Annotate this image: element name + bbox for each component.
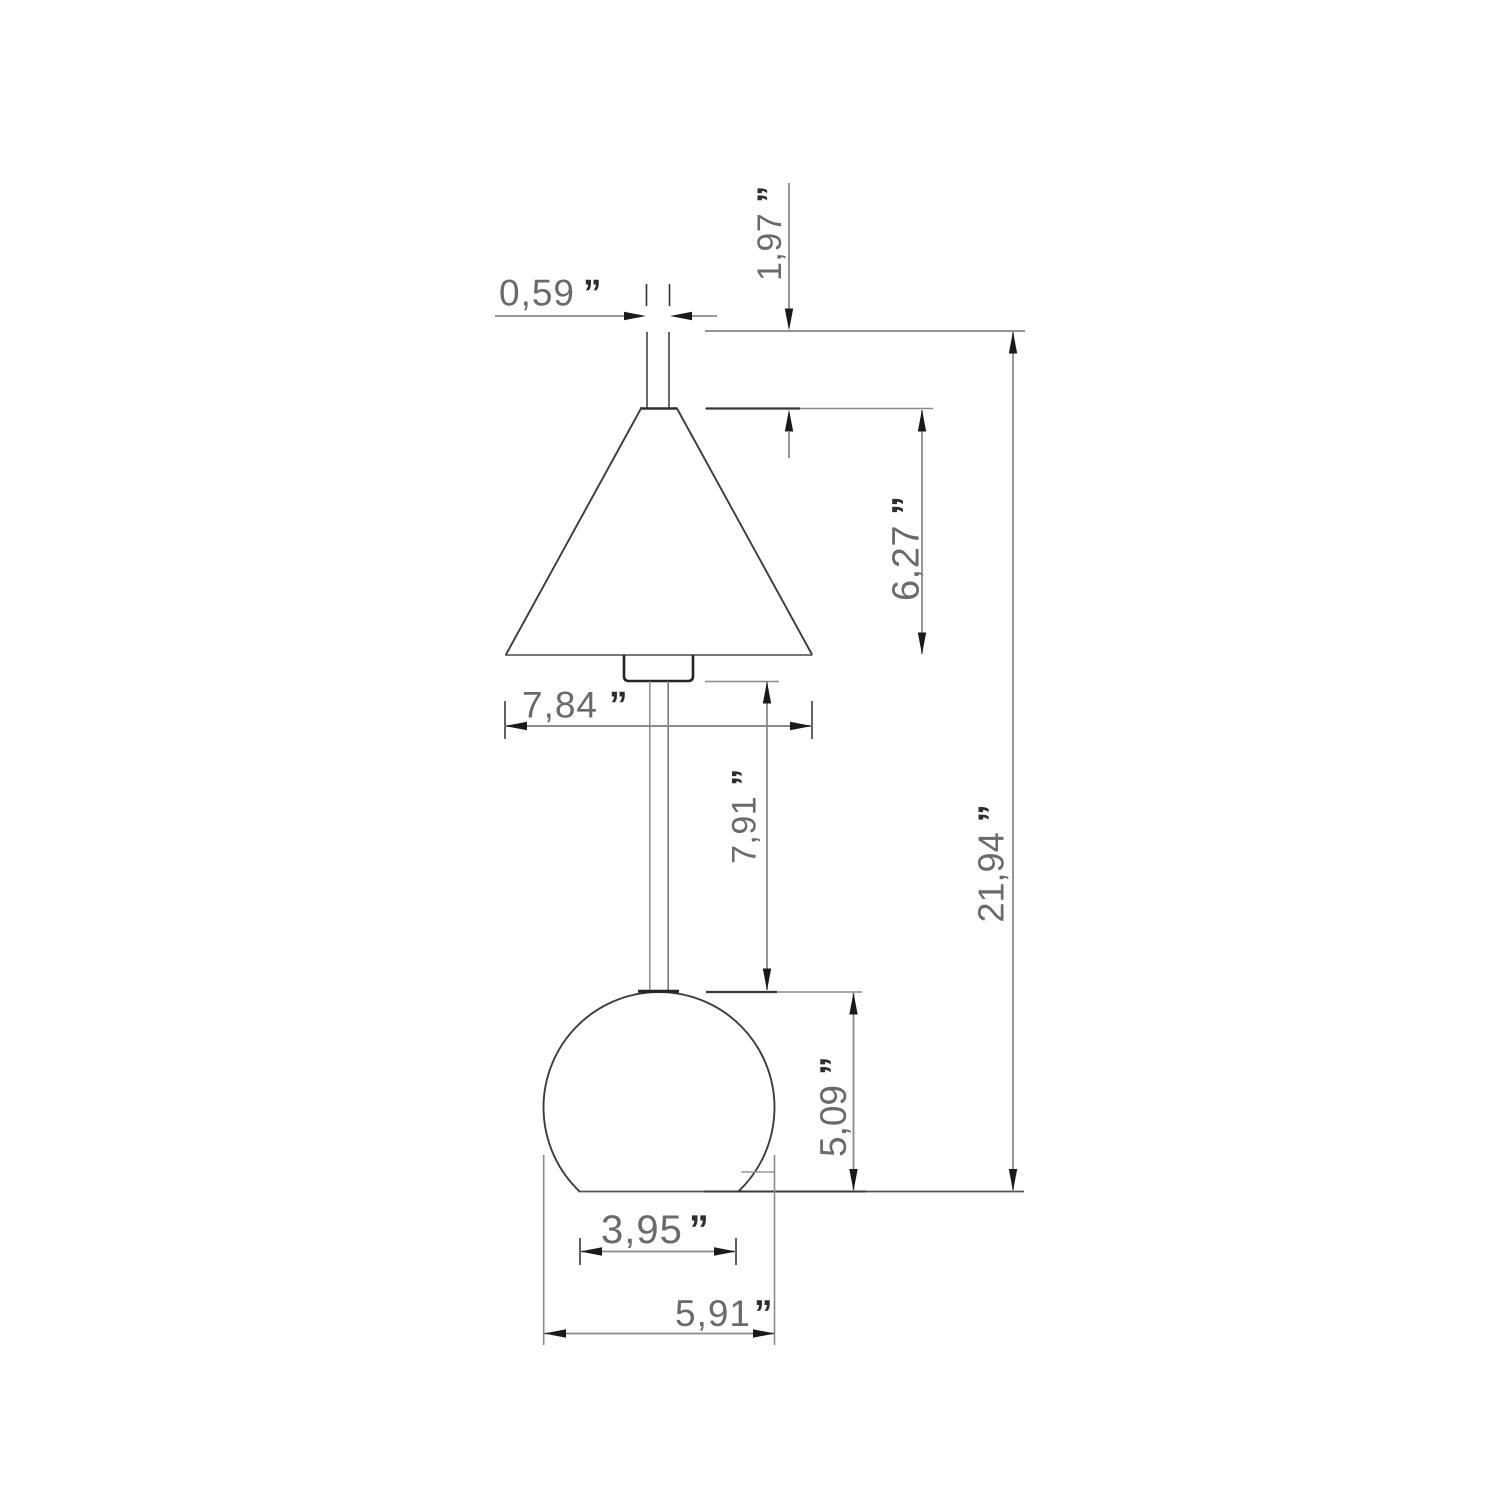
- svg-text:5,09”: 5,09”: [813, 1056, 854, 1157]
- svg-text:3,95”: 3,95”: [601, 1208, 709, 1252]
- svg-text:1,97”: 1,97”: [751, 186, 789, 281]
- svg-text:5,91”: 5,91”: [675, 1293, 773, 1334]
- svg-text:21,94”: 21,94”: [971, 804, 1012, 922]
- svg-text:7,84”: 7,84”: [522, 685, 628, 726]
- svg-text:0,59”: 0,59”: [499, 273, 602, 314]
- svg-text:7,91”: 7,91”: [726, 769, 764, 864]
